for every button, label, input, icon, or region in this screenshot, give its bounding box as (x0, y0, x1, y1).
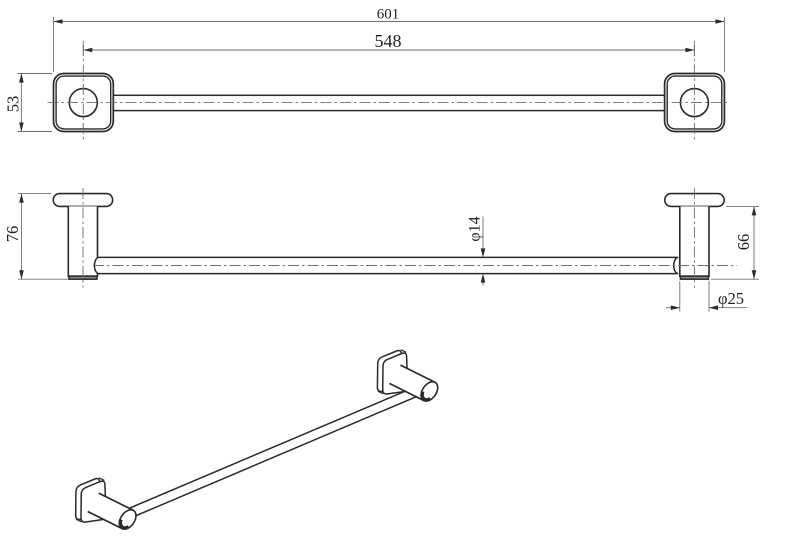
svg-text:601: 601 (377, 7, 400, 23)
svg-text:φ25: φ25 (718, 289, 744, 308)
svg-text:66: 66 (734, 234, 753, 251)
svg-text:76: 76 (3, 226, 22, 243)
svg-text:φ14: φ14 (466, 216, 483, 241)
svg-text:548: 548 (375, 31, 402, 51)
svg-text:53: 53 (3, 96, 22, 113)
